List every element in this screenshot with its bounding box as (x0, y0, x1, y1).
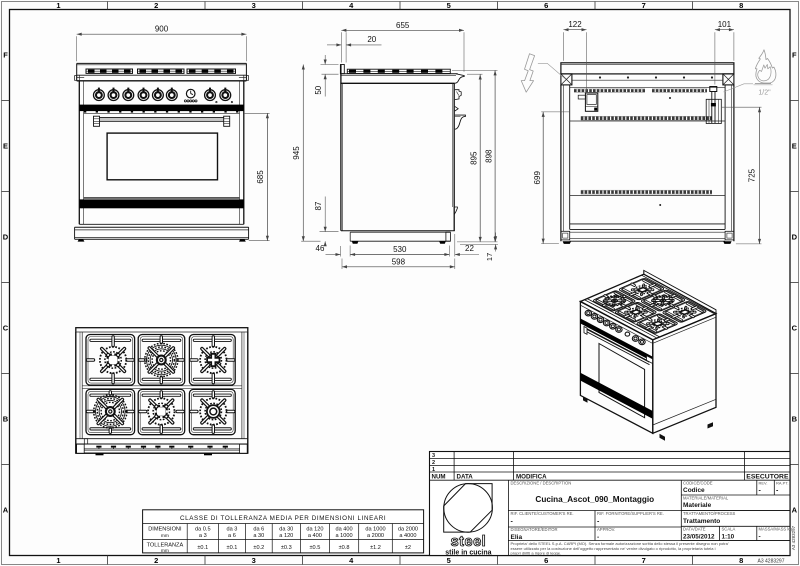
svg-text:NUM: NUM (432, 473, 446, 480)
svg-text:mm: mm (161, 534, 169, 539)
svg-text:TOLLERANZA: TOLLERANZA (147, 543, 184, 549)
svg-text:DATA/DATE: DATA/DATE (683, 527, 706, 532)
svg-text:ESECUTORE: ESECUTORE (746, 474, 789, 481)
svg-text:a 3: a 3 (199, 533, 207, 539)
svg-text:SCALA: SCALA (722, 527, 736, 532)
svg-text:±0.2: ±0.2 (253, 545, 264, 551)
svg-text:C: C (3, 324, 9, 333)
svg-text:5: 5 (447, 556, 451, 565)
svg-text:DISEGNATORE/EDITOR: DISEGNATORE/EDITOR (511, 527, 558, 532)
svg-text:D: D (3, 233, 9, 242)
svg-text:DIMENSIONI: DIMENSIONI (148, 527, 182, 533)
svg-text:MASSA/MASS kg: MASSA/MASS kg (759, 527, 793, 532)
svg-text:E: E (3, 142, 8, 151)
svg-text:a 1000: a 1000 (335, 533, 352, 539)
svg-text:da 1000: da 1000 (365, 527, 385, 533)
svg-text:685: 685 (256, 170, 265, 184)
svg-text:1: 1 (432, 467, 435, 473)
svg-text:E: E (792, 142, 797, 151)
svg-text:2: 2 (154, 556, 158, 565)
svg-text:A: A (792, 506, 798, 515)
svg-text:46: 46 (316, 244, 325, 253)
svg-text:B: B (792, 415, 798, 424)
svg-text:B: B (3, 415, 9, 424)
svg-text:900: 900 (155, 25, 169, 34)
svg-text:945: 945 (292, 146, 301, 160)
svg-text:propri diritti a rigore di leg: propri diritti a rigore di legge. (511, 550, 562, 555)
svg-text:F: F (3, 51, 8, 60)
svg-text:122: 122 (568, 20, 582, 29)
svg-text:2: 2 (432, 460, 435, 466)
svg-text:±0.3: ±0.3 (281, 545, 292, 551)
svg-text:MATERIALE/MATERIAL: MATERIALE/MATERIAL (683, 495, 729, 500)
svg-text:Trattamento: Trattamento (683, 518, 720, 525)
svg-text:598: 598 (392, 257, 406, 266)
svg-text:F: F (792, 51, 797, 60)
svg-text:101: 101 (718, 20, 732, 29)
svg-text:da 400: da 400 (335, 527, 352, 533)
svg-text:da 6: da 6 (253, 527, 264, 533)
svg-text:530: 530 (393, 245, 407, 254)
svg-text:A: A (3, 506, 9, 515)
svg-text:a 30: a 30 (253, 533, 264, 539)
svg-text:3: 3 (252, 556, 256, 565)
svg-text:a 400: a 400 (308, 533, 322, 539)
svg-text:A3 4283297: A3 4283297 (758, 559, 785, 565)
svg-text:da 2000: da 2000 (398, 527, 418, 533)
svg-text:Cucina_Ascot_090_Montaggio: Cucina_Ascot_090_Montaggio (535, 495, 654, 504)
svg-text:17: 17 (485, 253, 494, 261)
svg-text:C: C (792, 324, 798, 333)
svg-text:a 4000: a 4000 (399, 533, 416, 539)
svg-text:APPROV.: APPROV. (597, 527, 615, 532)
svg-text:699: 699 (533, 171, 542, 185)
svg-text:±0.8: ±0.8 (339, 545, 350, 551)
svg-text:±1.2: ±1.2 (370, 545, 381, 551)
svg-text:6: 6 (544, 556, 548, 565)
svg-text:895: 895 (470, 151, 479, 165)
svg-text:-: - (759, 534, 761, 541)
svg-text:MODIFICA: MODIFICA (516, 473, 547, 480)
svg-text:±0.5: ±0.5 (309, 545, 320, 551)
svg-text:725: 725 (748, 168, 757, 182)
svg-text:87: 87 (314, 201, 323, 210)
svg-text:23/05/2012: 23/05/2012 (683, 533, 715, 540)
svg-text:da 3: da 3 (227, 527, 238, 533)
svg-text:da 120: da 120 (306, 527, 323, 533)
svg-text:da 30: da 30 (279, 527, 293, 533)
svg-text:8: 8 (739, 556, 743, 565)
svg-text:REV.: REV. (759, 481, 768, 486)
svg-text:7: 7 (642, 556, 646, 565)
svg-text:a 2000: a 2000 (367, 533, 384, 539)
svg-text:RA.PT.: RA.PT. (776, 481, 788, 486)
svg-text:8: 8 (739, 1, 743, 10)
svg-text:Codice: Codice (683, 487, 705, 494)
svg-text:1: 1 (56, 1, 60, 10)
svg-text:steel: steel (451, 534, 487, 550)
svg-text:Materiale: Materiale (683, 502, 712, 509)
svg-text:TRATTAMENTO/PROCESS: TRATTAMENTO/PROCESS (683, 511, 736, 516)
svg-text:RIF. FORNITORE/SUPPLIER'S RE.: RIF. FORNITORE/SUPPLIER'S RE. (597, 511, 664, 516)
svg-text:5: 5 (447, 1, 451, 10)
svg-text:±2: ±2 (405, 545, 411, 551)
svg-text:898: 898 (485, 149, 494, 163)
svg-text:DATA: DATA (457, 473, 474, 480)
svg-text:1: 1 (56, 556, 60, 565)
svg-text:-: - (597, 534, 599, 541)
svg-text:±0.1: ±0.1 (227, 545, 238, 551)
svg-text:a 6: a 6 (228, 533, 236, 539)
svg-text:stile in cucina: stile in cucina (445, 550, 491, 557)
svg-text:22: 22 (465, 244, 474, 253)
svg-text:2: 2 (154, 1, 158, 10)
svg-text:3: 3 (432, 453, 435, 459)
svg-text:20: 20 (367, 35, 376, 44)
svg-text:RIF. CLIENTE/CUSTOMER'S RE.: RIF. CLIENTE/CUSTOMER'S RE. (511, 511, 574, 516)
svg-text:±0.1: ±0.1 (197, 545, 208, 551)
svg-text:D: D (792, 233, 798, 242)
svg-text:6: 6 (544, 1, 548, 10)
svg-text:DESCRIZIONE / DESCRIPTION: DESCRIZIONE / DESCRIPTION (511, 481, 572, 486)
svg-text:3: 3 (252, 1, 256, 10)
svg-text:a 120: a 120 (279, 533, 293, 539)
svg-text:7: 7 (642, 1, 646, 10)
svg-text:655: 655 (396, 21, 410, 30)
svg-text:1:10: 1:10 (722, 533, 735, 540)
svg-text:CLASSE DI TOLLERANZA MEDIA PER: CLASSE DI TOLLERANZA MEDIA PER DIMENSION… (180, 515, 386, 522)
svg-text:mm: mm (161, 549, 169, 554)
svg-text:50: 50 (314, 85, 323, 94)
svg-text:Elia: Elia (511, 534, 523, 541)
svg-text:CODICE/CODE: CODICE/CODE (683, 481, 713, 486)
svg-text:1/2": 1/2" (758, 90, 771, 97)
svg-text:da 0.5: da 0.5 (195, 527, 211, 533)
